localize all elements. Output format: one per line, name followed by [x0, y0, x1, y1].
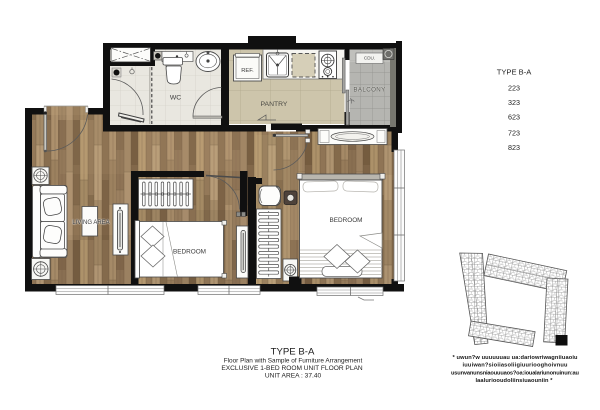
svg-text:PANTRY: PANTRY [261, 101, 288, 108]
svg-text:BALCONY: BALCONY [353, 87, 385, 94]
svg-text:BEDROOM: BEDROOM [329, 217, 362, 224]
svg-text:723: 723 [508, 129, 520, 138]
svg-text:623: 623 [508, 113, 520, 122]
svg-text:LIVING AREA: LIVING AREA [72, 220, 109, 226]
svg-text:TYPE B-A: TYPE B-A [497, 68, 533, 77]
svg-text:UNIT AREA : 37.40: UNIT AREA : 37.40 [265, 373, 322, 380]
svg-text:BEDROOM: BEDROOM [173, 249, 206, 256]
svg-text:usunvanunsniaouuuaos?oa:iouala: usunvanunsniaouuuaos?oa:ioualariunonuinu… [451, 370, 580, 376]
svg-text:REF.: REF. [241, 68, 254, 74]
svg-text:* uwun?w uuuuuuau ua:dariowriw: * uwun?w uuuuuuau ua:dariowriwagniiuaoiu [453, 355, 579, 361]
svg-text:CDU.: CDU. [364, 56, 375, 61]
svg-text:iuuiwan?sioiiasoliigiuurioogho: iuuiwan?sioiiasoliigiuuriooghoivnuu [462, 363, 568, 369]
svg-text:EXCLUSIVE 1-BED ROOM UNIT FLOO: EXCLUSIVE 1-BED ROOM UNIT FLOOR PLAN [221, 365, 363, 372]
svg-text:laaluriooudoliinsiuaouniin *: laaluriooudoliinsiuaouniin * [476, 378, 554, 384]
svg-text:WC: WC [170, 95, 181, 102]
svg-text:223: 223 [508, 84, 520, 93]
svg-text:323: 323 [508, 98, 520, 107]
svg-text:TYPE B-A: TYPE B-A [271, 347, 315, 358]
svg-text:823: 823 [508, 143, 520, 152]
svg-text:Floor Plan with Sample of Furn: Floor Plan with Sample of Furniture Arra… [224, 358, 363, 365]
